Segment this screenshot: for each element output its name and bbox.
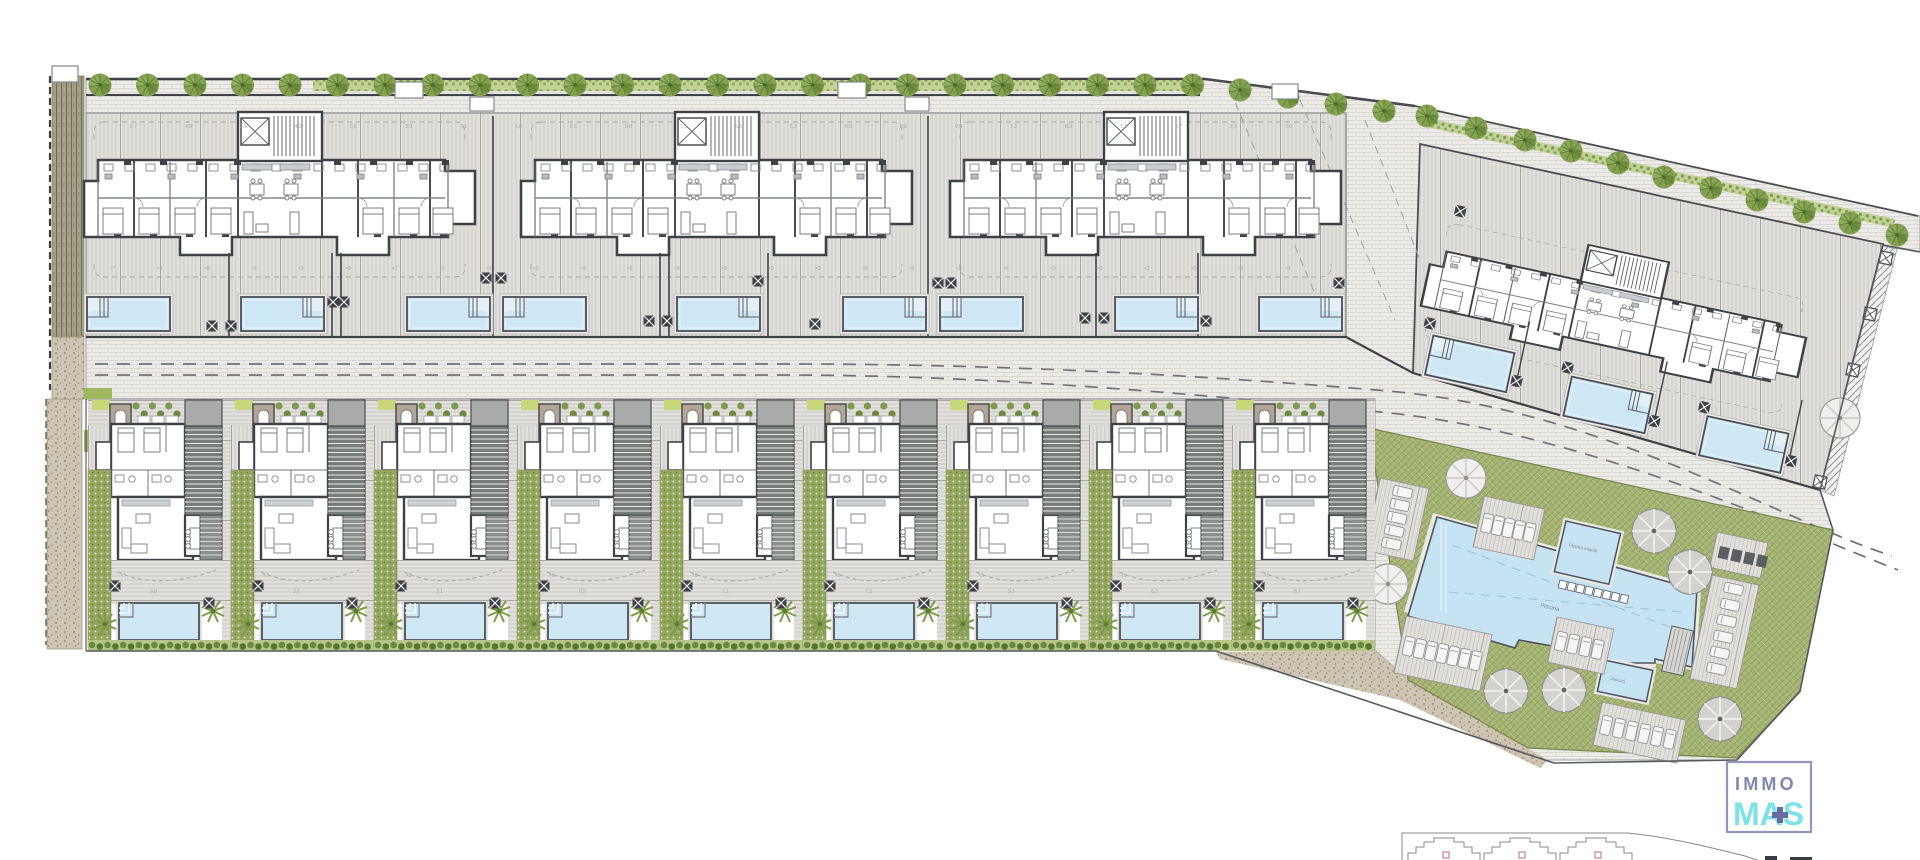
svg-text:7,5: 7,5 [680,124,687,130]
svg-text:7,3: 7,3 [865,589,872,595]
svg-text:×3: ×3 [978,573,984,579]
svg-text:×8: ×8 [862,266,868,272]
svg-text:×3: ×3 [580,266,586,272]
svg-text:×8: ×8 [1097,266,1103,272]
svg-text:IMMO: IMMO [1735,774,1797,794]
svg-text:7,6: 7,6 [1285,124,1292,130]
svg-text:×4: ×4 [1285,266,1291,272]
svg-text:9,1: 9,1 [1008,589,1015,595]
svg-text:×2: ×2 [1238,266,1244,272]
svg-text:×2: ×2 [533,266,539,272]
svg-text:9,5: 9,5 [579,589,586,595]
svg-text:3,1: 3,1 [436,589,443,595]
svg-text:6,7: 6,7 [130,124,137,130]
svg-text:×5: ×5 [1121,573,1127,579]
svg-text:×8: ×8 [674,266,680,272]
svg-text:8,7: 8,7 [1294,589,1301,595]
svg-text:8,3: 8,3 [1065,124,1072,130]
svg-text:6,9: 6,9 [845,124,852,130]
svg-text:×8: ×8 [627,266,633,272]
svg-text:×2: ×2 [909,266,915,272]
svg-text:3,9: 3,9 [405,124,412,130]
svg-text:3,5: 3,5 [293,589,300,595]
svg-text:×8: ×8 [204,266,210,272]
svg-text:9,5: 9,5 [955,124,962,130]
svg-text:9,7: 9,7 [1175,124,1182,130]
svg-text:×8: ×8 [692,573,698,579]
svg-text:9,8: 9,8 [625,124,632,130]
svg-text:×5: ×5 [768,266,774,272]
svg-text:×2: ×2 [439,266,445,272]
svg-text:2,2: 2,2 [1230,124,1237,130]
svg-text:×3: ×3 [298,266,304,272]
svg-text:9,6: 9,6 [900,124,907,130]
svg-text:×3: ×3 [956,266,962,272]
svg-text:5,2: 5,2 [790,124,797,130]
svg-text:5,6: 5,6 [350,124,357,130]
svg-text:×7: ×7 [392,266,398,272]
svg-text:MAS: MAS [1733,796,1804,832]
svg-text:×3: ×3 [345,266,351,272]
svg-text:3,5: 3,5 [240,124,247,130]
svg-text:3,1: 3,1 [460,124,467,130]
svg-text:7,3: 7,3 [1120,124,1127,130]
svg-text:×9: ×9 [835,573,841,579]
svg-text:8,6: 8,6 [570,124,577,130]
svg-text:×7: ×7 [120,573,126,579]
svg-text:7,1: 7,1 [722,589,729,595]
svg-text:×5: ×5 [1003,266,1009,272]
svg-text:×3: ×3 [815,266,821,272]
svg-text:×5: ×5 [1191,266,1197,272]
svg-text:×4: ×4 [157,266,163,272]
svg-text:4,9: 4,9 [185,124,192,130]
svg-text:×7: ×7 [110,266,116,272]
svg-text:×2: ×2 [1050,266,1056,272]
svg-text:×9: ×9 [406,573,412,579]
svg-text:6,3: 6,3 [1151,589,1158,595]
svg-text:4,2: 4,2 [295,124,302,130]
svg-text:3,2: 3,2 [1010,124,1017,130]
svg-text:×2: ×2 [1144,266,1150,272]
svg-text:×5: ×5 [1264,573,1270,579]
svg-text:5,3: 5,3 [735,124,742,130]
svg-text:×6: ×6 [549,573,555,579]
svg-text:×2: ×2 [251,266,257,272]
svg-text:9,8: 9,8 [150,589,157,595]
svg-text:×3: ×3 [721,266,727,272]
svg-text:×5: ×5 [486,266,492,272]
svg-text:5,8: 5,8 [515,124,522,130]
svg-text:×3: ×3 [263,573,269,579]
